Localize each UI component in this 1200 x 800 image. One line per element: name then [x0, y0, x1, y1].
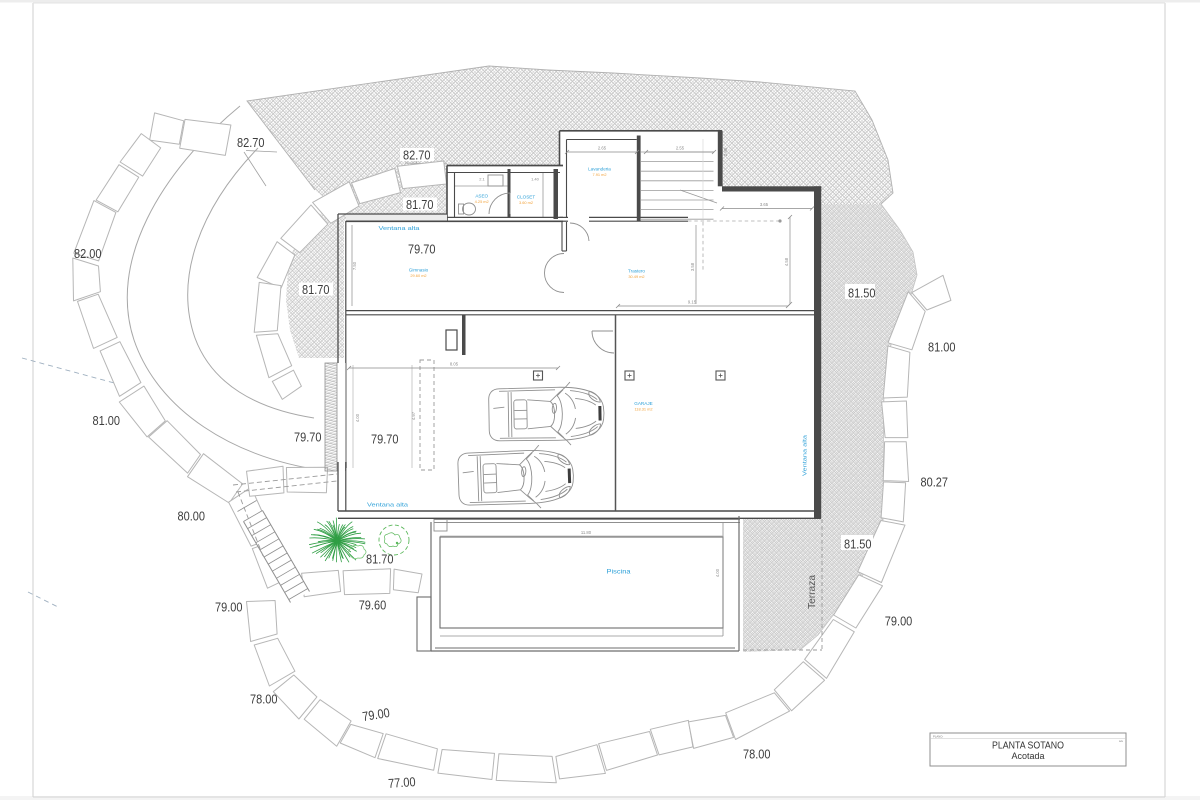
svg-text:118.31 m2: 118.31 m2: [634, 407, 652, 412]
svg-text:11.80: 11.80: [581, 530, 592, 535]
svg-text:1.40: 1.40: [531, 177, 540, 182]
svg-text:Acotada: Acotada: [1012, 751, 1045, 761]
svg-text:78.00: 78.00: [250, 692, 278, 707]
svg-text:2.65: 2.65: [598, 146, 607, 151]
svg-text:30.49 m2: 30.49 m2: [628, 274, 644, 279]
svg-text:81.70: 81.70: [302, 282, 330, 297]
svg-text:CLOSET: CLOSET: [517, 195, 536, 200]
svg-text:Ventana alta: Ventana alta: [367, 503, 409, 509]
svg-text:7.91 m2: 7.91 m2: [592, 172, 606, 177]
svg-text:8.05: 8.05: [450, 362, 459, 367]
svg-text:Ventana alta: Ventana alta: [379, 226, 421, 232]
svg-text:81.50: 81.50: [848, 286, 876, 301]
svg-text:2.1: 2.1: [479, 177, 485, 182]
svg-text:s/e: s/e: [1119, 739, 1123, 743]
svg-text:9.15: 9.15: [688, 300, 697, 305]
svg-text:4.25 m2: 4.25 m2: [475, 199, 489, 204]
svg-text:79.00: 79.00: [885, 614, 913, 629]
svg-text:4.58: 4.58: [784, 257, 789, 266]
svg-text:79.70: 79.70: [408, 242, 436, 257]
svg-text:79.70: 79.70: [294, 430, 322, 445]
svg-text:3.60 m2: 3.60 m2: [519, 200, 533, 205]
svg-text:4.97: 4.97: [411, 411, 416, 420]
svg-text:78.00: 78.00: [743, 747, 771, 762]
svg-text:7.50: 7.50: [352, 261, 357, 270]
svg-text:81.00: 81.00: [928, 340, 956, 355]
svg-text:4.00: 4.00: [355, 413, 360, 422]
svg-text:81.00: 81.00: [93, 413, 121, 428]
svg-text:PLANO:: PLANO:: [933, 735, 943, 739]
svg-text:2.55: 2.55: [676, 146, 685, 151]
svg-text:4.00: 4.00: [715, 568, 720, 577]
svg-text:79.70: 79.70: [371, 432, 399, 447]
svg-text:Gimnasio: Gimnasio: [409, 268, 429, 273]
svg-text:PLANTA SOTANO: PLANTA SOTANO: [992, 741, 1064, 752]
svg-text:82.00: 82.00: [74, 246, 102, 261]
svg-text:3.65: 3.65: [760, 202, 769, 207]
svg-text:Lavanderia: Lavanderia: [588, 167, 611, 172]
svg-text:79.00: 79.00: [215, 600, 243, 615]
svg-text:81.70: 81.70: [366, 552, 394, 567]
svg-text:Terraza: Terraza: [807, 574, 818, 609]
svg-text:81.50: 81.50: [844, 537, 872, 552]
svg-text:GARAJE: GARAJE: [634, 401, 652, 406]
svg-text:82.70: 82.70: [403, 148, 431, 163]
svg-text:Piscina: Piscina: [607, 569, 631, 576]
svg-text:80.27: 80.27: [921, 475, 949, 490]
svg-text:29.60 m2: 29.60 m2: [410, 273, 426, 278]
svg-text:81.70: 81.70: [406, 197, 434, 212]
svg-text:Ventana alta: Ventana alta: [803, 434, 809, 476]
svg-text:2.95: 2.95: [723, 147, 728, 156]
svg-text:82.70: 82.70: [237, 135, 265, 150]
svg-text:3.58: 3.58: [690, 262, 695, 271]
svg-text:77.00: 77.00: [388, 774, 416, 791]
svg-text:Trastero: Trastero: [628, 269, 645, 274]
svg-text:ASEO: ASEO: [475, 194, 488, 199]
svg-text:80.00: 80.00: [178, 509, 206, 524]
svg-text:79.60: 79.60: [359, 598, 387, 613]
